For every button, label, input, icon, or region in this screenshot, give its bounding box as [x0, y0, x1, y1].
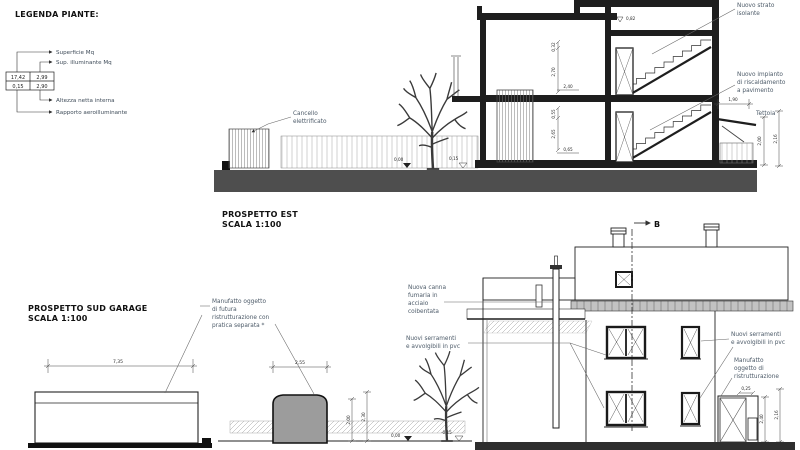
leader-manufatto-1: [165, 315, 202, 393]
wing-eaves-band: [467, 309, 585, 319]
level-mark-082: [617, 17, 623, 22]
legend: LEGENDA PIANTE: 17,42 2,99 0,15 2,90 Sup…: [6, 10, 128, 116]
attic-window: [616, 272, 632, 287]
garage-side-body: [273, 395, 327, 443]
legend-label-altezza: Altezza netta interna: [56, 98, 115, 104]
dim-annex-small: [737, 391, 755, 395]
level-curb-label: 0,15: [449, 156, 459, 161]
ann-manufatto-1: Manufatto oggetto: [212, 299, 266, 305]
right-railing: [720, 143, 753, 163]
ann-serramenti-left-2: e avvolgibili in pvc: [406, 344, 460, 350]
drawing-sheet: LEGENDA PIANTE: 17,42 2,99 0,15 2,90 Sup…: [0, 0, 800, 450]
dim-chain-lower: [556, 106, 579, 153]
ann-manufatto-right-1: Manufatto: [734, 358, 764, 364]
glazed-wall: [497, 90, 533, 162]
legend-value-superficie: 17,42: [11, 75, 25, 81]
cad-drawing: LEGENDA PIANTE: 17,42 2,99 0,15 2,90 Sup…: [0, 0, 800, 450]
balcony-railing: [451, 56, 461, 96]
ann-serramenti-left-1: Nuovi serramenti: [406, 336, 456, 342]
dim-082: 0,82: [626, 16, 636, 21]
canopy-slab: [717, 119, 756, 125]
ann-impianto-1: Nuovo impianto: [737, 72, 783, 78]
canopy-brace: [722, 126, 744, 142]
garage-side-view: 2,55 2,00 2,30 0,00 -0,15 Manufatto ogge…: [165, 299, 479, 443]
level-zero-bottom-label: 0,00: [391, 433, 401, 438]
legend-label-rapporto: Rapporto aeroilluminante: [56, 110, 128, 116]
ann-canna-3: acciaio: [408, 301, 429, 307]
flue-top: [555, 256, 558, 266]
window-narrow-lower: [680, 393, 701, 426]
wing-pipe: [536, 285, 542, 307]
gate-hatch: [229, 129, 269, 168]
legend-label-illuminante: Sup. illuminante Mq: [56, 60, 112, 66]
leader-manufatto-2: [275, 324, 314, 394]
house-elevation: B 0,25 2,40 2,16 Nuova canna: [406, 220, 795, 450]
section-door-upper: [616, 48, 633, 95]
dim-190-label: 1,90: [728, 97, 738, 102]
window-large-lower: [604, 392, 648, 427]
house-ground: [475, 442, 795, 450]
dim-270: 2,70: [551, 67, 556, 77]
legend-value-altezza: 2,90: [36, 84, 47, 90]
garage-body: [35, 392, 198, 443]
gable-wall: [575, 247, 788, 300]
ann-manufatto-right-3: ristrutturazione: [734, 374, 779, 380]
dim-annex-240: 2,40: [759, 414, 764, 424]
dim-065: 0,65: [563, 147, 573, 152]
ann-cancello-2: elettrificato: [293, 119, 327, 125]
ann-strato-2: isolante: [737, 11, 760, 17]
title-prospetto-est-scale: SCALA 1:100: [222, 220, 282, 229]
dim-265: 2,65: [551, 129, 556, 139]
leader-serramenti-right-2: [700, 347, 733, 398]
ann-serramenti-right-2: e avvolgibili in pvc: [731, 340, 785, 346]
ann-manufatto-2: di futura: [212, 307, 237, 313]
flue-cap: [550, 265, 562, 269]
section-door-lower: [616, 112, 633, 162]
level-zero-label: 0,00: [394, 157, 404, 162]
level-mark-minus: [455, 436, 463, 441]
garage-ground: [28, 443, 212, 448]
ann-manufatto-3: ristrutturazione con: [212, 315, 270, 321]
main-eaves-band: [571, 301, 793, 311]
ann-canna-4: coibentata: [408, 309, 439, 315]
legend-value-rapporto: 0,15: [12, 84, 23, 90]
ann-manufatto-right-2: oggetto di: [734, 366, 764, 372]
title-prospetto-sud: PROSPETTO SUD GARAGE: [28, 304, 147, 313]
section-drawing: 0,00 0,15: [214, 0, 786, 192]
dim-032: 0,32: [551, 42, 556, 52]
title-prospetto-sud-scale: SCALA 1:100: [28, 314, 88, 323]
leader-manufatto-right: [721, 378, 732, 396]
dim-h216: 2,16: [773, 134, 778, 144]
ann-impianto-2: di riscaldamento: [737, 80, 786, 86]
wing-soffit-hatch: [484, 321, 592, 333]
dim-annex-025: 0,25: [741, 386, 751, 391]
window-narrow-upper: [680, 327, 701, 359]
fence-hatch: [281, 136, 478, 168]
section-marker-b: B: [654, 220, 660, 229]
level-mark-zero-bottom: [404, 436, 412, 441]
garage-ground-post: [202, 438, 211, 447]
dim-h200: 2,00: [757, 136, 762, 146]
dim-055: 0,55: [551, 109, 556, 119]
garage-elevation: 7,35: [28, 359, 212, 448]
dim-240: 2,40: [563, 84, 573, 89]
ann-serramenti-right-1: Nuovi serramenti: [731, 332, 781, 338]
legend-title: LEGENDA PIANTE:: [15, 10, 99, 19]
legend-leaders: [17, 52, 52, 112]
title-prospetto-est: PROSPETTO EST: [222, 210, 298, 219]
legend-value-illuminante: 2,99: [36, 75, 47, 81]
ann-cancello-1: Cancello: [293, 111, 318, 117]
flue-pipe: [553, 269, 559, 428]
dim-garage-h230: 2,30: [361, 412, 366, 422]
ann-impianto-3: a pavimento: [737, 88, 774, 94]
dim-garage-h200: 2,00: [346, 415, 351, 425]
ann-canna-1: Nuova canna: [408, 285, 446, 291]
chimney-left: [611, 228, 626, 247]
dim-annex-216: 2,16: [774, 410, 779, 420]
legend-label-superficie: Superficie Mq: [56, 50, 95, 56]
level-minus-label: -0,15: [441, 430, 452, 435]
leader-serramenti-left-1: [468, 343, 606, 355]
ann-strato-1: Nuovo strato: [737, 3, 775, 9]
wing-wall: [483, 278, 575, 300]
ann-manufatto-4: pratica separata *: [212, 323, 265, 329]
dim-735-label: 7,35: [113, 359, 123, 365]
section-ground: [214, 170, 757, 192]
annex-structure: [718, 396, 758, 443]
ann-tettoia: Tettoia: [755, 111, 776, 117]
chimney-right: [704, 224, 719, 247]
ann-canna-2: fumaria in: [408, 293, 438, 299]
window-large-upper: [604, 327, 648, 359]
